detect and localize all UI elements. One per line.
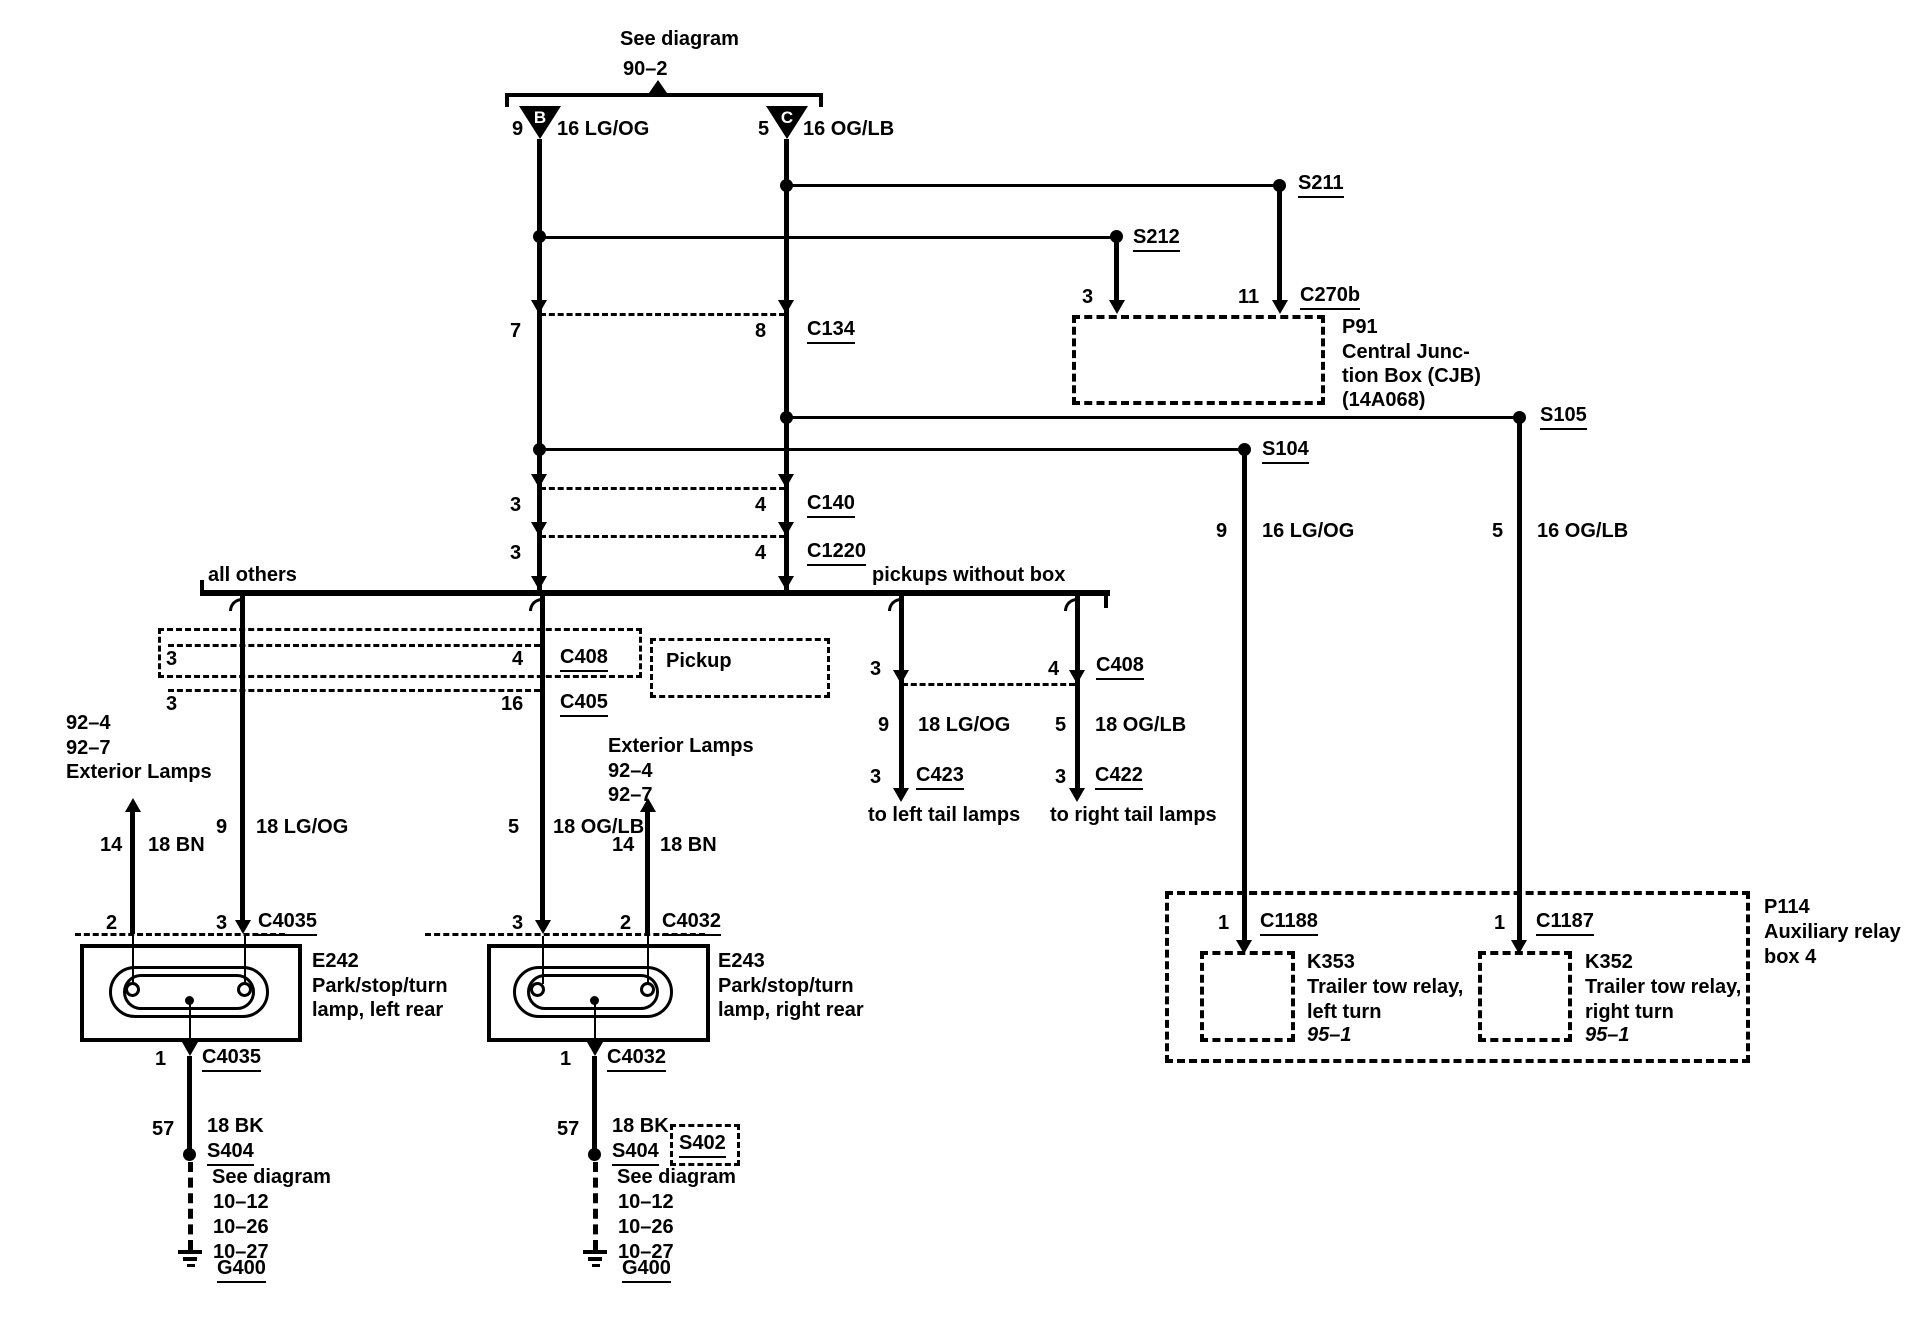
p114-id: P114 <box>1764 896 1810 919</box>
arrowhead-icon <box>531 474 547 488</box>
e242-bn-gauge: 18 BN <box>148 834 205 857</box>
junction-dot <box>588 1148 601 1161</box>
ground-symbol-icon <box>183 1257 197 1261</box>
see-diagram-ref: 90–2 <box>623 58 668 81</box>
k352-name-1: Trailer tow relay, <box>1585 976 1741 999</box>
arrowhead-icon <box>235 920 251 934</box>
wire-hook-icon <box>529 598 542 611</box>
top-bracket-end-left <box>505 93 509 107</box>
feed-left-pin: 9 <box>1216 520 1227 543</box>
connector-triangle-b-label: B <box>519 108 561 128</box>
e242-see-note-3: 10–26 <box>213 1216 269 1239</box>
e242-see-note-1: See diagram <box>212 1166 331 1189</box>
arrowhead-icon <box>778 300 794 314</box>
connector-c423-label: C423 <box>916 764 964 790</box>
wire-c-gauge: 16 OG/LB <box>803 118 894 141</box>
top-bracket <box>505 93 823 97</box>
bus-hook-right <box>1104 594 1108 608</box>
top-bracket-end-right <box>819 93 823 107</box>
arrowhead-icon <box>531 576 547 590</box>
k353-ref: 95–1 <box>1307 1024 1352 1047</box>
feed-left-gauge: 16 LG/OG <box>1262 520 1354 543</box>
p114-name-2: box 4 <box>1764 946 1816 969</box>
wiring-diagram: See diagram 90–2 B C 9 16 LG/OG 5 16 OG/… <box>0 0 1912 1328</box>
wire-e243-ground-dashed <box>593 1162 598 1250</box>
c4035-bottom-pin: 1 <box>155 1048 166 1071</box>
connector-c405-line <box>168 689 540 692</box>
junction-dot <box>533 230 546 243</box>
splice-s402-label: S402 <box>679 1132 726 1158</box>
c422-pin: 3 <box>1055 766 1066 789</box>
c408-left-pin-right: 4 <box>512 648 523 671</box>
e242-filament-left <box>125 982 140 997</box>
junction-dot <box>780 179 793 192</box>
junction-dot <box>533 443 546 456</box>
wire-s211-drop <box>1277 187 1282 303</box>
wire-c-pin: 5 <box>758 118 769 141</box>
ground-g400-right-label: G400 <box>622 1257 671 1283</box>
connector-c134-label: C134 <box>807 318 855 344</box>
connector-c4035-bottom-label: C4035 <box>202 1046 261 1072</box>
c4032-bottom-pin: 1 <box>560 1048 571 1071</box>
wire-s212-drop <box>1114 239 1119 303</box>
cjb-name-3: (14A068) <box>1342 389 1425 412</box>
c423-pin: 3 <box>870 766 881 789</box>
splice-line-s211 <box>787 184 1280 187</box>
connector-c4035-top-label: C4035 <box>258 910 317 936</box>
connector-c408-left-label: C408 <box>560 646 608 672</box>
pickup-left-gauge: 18 LG/OG <box>918 714 1010 737</box>
ground-symbol-icon <box>588 1257 602 1261</box>
c140-pin-left: 3 <box>510 494 521 517</box>
k352-ref: 95–1 <box>1585 1024 1630 1047</box>
pickup-note: Pickup <box>666 650 732 673</box>
connector-c408-right-label: C408 <box>1096 654 1144 680</box>
wire-e242-ground-dashed <box>188 1162 193 1250</box>
right-ref-2: 92–4 <box>608 760 653 783</box>
c405-pin-right: 16 <box>501 693 523 716</box>
connector-c1220-line <box>540 535 785 538</box>
e243-name-1: Park/stop/turn <box>718 975 854 998</box>
k352-id: K352 <box>1585 951 1633 974</box>
connector-c140-line <box>540 487 785 490</box>
arrowhead-icon <box>587 1042 603 1056</box>
connector-c140-label: C140 <box>807 492 855 518</box>
bus-left-label: all others <box>208 564 297 587</box>
splice-s211-label: S211 <box>1298 172 1344 198</box>
pickup-c408-pin-right: 4 <box>1048 658 1059 681</box>
bracket-caret-icon <box>649 80 667 93</box>
e242-name-1: Park/stop/turn <box>312 975 448 998</box>
left-ref-2: 92–7 <box>66 737 111 760</box>
e242-see-note-2: 10–12 <box>213 1191 269 1214</box>
p114-name-1: Auxiliary relay <box>1764 921 1901 944</box>
e243-lead-left <box>542 936 544 984</box>
c1187-pin: 1 <box>1494 912 1505 935</box>
arrowhead-icon <box>1069 670 1085 684</box>
arrowhead-icon <box>1272 300 1288 314</box>
c405-pin-left: 3 <box>166 693 177 716</box>
splice-line-s105 <box>787 416 1520 419</box>
e242-filament-right <box>237 982 252 997</box>
wire-e242-ground <box>187 1056 192 1156</box>
wire-e242-bn <box>130 810 135 934</box>
connector-c408-right-line <box>902 683 1075 686</box>
junction-dot <box>183 1148 196 1161</box>
arrowhead-icon <box>531 300 547 314</box>
cjb-box <box>1072 315 1325 405</box>
arrowhead-icon <box>778 522 794 536</box>
wire-b-pin: 9 <box>512 118 523 141</box>
e243-see-note-3: 10–26 <box>618 1216 674 1239</box>
arrowhead-icon <box>1069 788 1085 802</box>
arrowhead-icon <box>778 474 794 488</box>
splice-line-s212 <box>540 236 1117 239</box>
k353-name-1: Trailer tow relay, <box>1307 976 1463 999</box>
pickup-right-gauge: 18 OG/LB <box>1095 714 1186 737</box>
connector-c1220-label: C1220 <box>807 540 866 566</box>
bus-hook-left <box>200 580 204 592</box>
feed-right-pin: 5 <box>1492 520 1503 543</box>
e242-gnd-gauge: 18 BK <box>207 1115 264 1138</box>
junction-dot <box>780 411 793 424</box>
connector-c4032-bottom-label: C4032 <box>607 1046 666 1072</box>
cjb-pin-left: 3 <box>1082 286 1093 309</box>
e243-see-note-2: 10–12 <box>618 1191 674 1214</box>
c1188-pin: 1 <box>1218 912 1229 935</box>
arrowhead-icon <box>535 920 551 934</box>
e243-feed-pin: 5 <box>508 816 519 839</box>
arrowhead-icon <box>893 788 909 802</box>
e242-center-lead <box>189 1002 191 1042</box>
e243-lead-right <box>647 936 649 984</box>
k353-relay-box <box>1200 951 1295 1042</box>
e243-gnd-gauge: 18 BK <box>612 1115 669 1138</box>
splice-s404-right-label: S404 <box>612 1140 659 1166</box>
e243-filament-right <box>640 982 655 997</box>
connector-c408-left-line <box>168 644 540 647</box>
arrowhead-icon <box>893 670 909 684</box>
e243-bn-pin: 14 <box>612 834 634 857</box>
c1220-pin-right: 4 <box>755 542 766 565</box>
wire-s104-to-k353 <box>1242 451 1247 943</box>
pickup-left-pin: 9 <box>878 714 889 737</box>
splice-s212-label: S212 <box>1133 226 1180 252</box>
ground-g400-left-label: G400 <box>217 1257 266 1283</box>
c4035-pin-3: 3 <box>216 912 227 935</box>
wire-hook-icon <box>888 598 901 611</box>
connector-c4032-top-label: C4032 <box>662 910 721 936</box>
connector-c405-label: C405 <box>560 691 608 717</box>
wire-e243-bn <box>645 810 650 934</box>
pickup-c408-pin-left: 3 <box>870 658 881 681</box>
bus-right-label: pickups without box <box>872 564 1065 587</box>
right-tail-lamps-note: to right tail lamps <box>1050 804 1217 827</box>
see-diagram-note: See diagram <box>620 28 739 51</box>
pickup-right-pin: 5 <box>1055 714 1066 737</box>
splice-s105-label: S105 <box>1540 404 1587 430</box>
left-ref-3: Exterior Lamps <box>66 761 212 784</box>
k352-relay-box <box>1478 951 1572 1042</box>
e242-gnd-pin: 57 <box>152 1118 174 1141</box>
k352-name-2: right turn <box>1585 1001 1674 1024</box>
c408-left-pin-left: 3 <box>166 648 177 671</box>
bus-line <box>200 590 1110 596</box>
e242-bn-pin: 14 <box>100 834 122 857</box>
cjb-pin-right: 11 <box>1238 286 1259 309</box>
wire-hook-icon <box>1064 598 1077 611</box>
connector-c1187-label: C1187 <box>1536 910 1594 936</box>
arrowhead-icon <box>531 522 547 536</box>
arrowhead-icon <box>1109 300 1125 314</box>
e242-name-2: lamp, left rear <box>312 999 443 1022</box>
left-tail-lamps-note: to left tail lamps <box>868 804 1020 827</box>
right-ref-1: Exterior Lamps <box>608 735 754 758</box>
wire-b-gauge: 16 LG/OG <box>557 118 649 141</box>
c4032-pin-2: 2 <box>620 912 631 935</box>
connector-triangle-c-label: C <box>766 108 808 128</box>
connector-c1188-label: C1188 <box>1260 910 1318 936</box>
k353-id: K353 <box>1307 951 1355 974</box>
splice-s104-label: S104 <box>1262 438 1309 464</box>
k353-name-2: left turn <box>1307 1001 1381 1024</box>
e242-lead-left <box>132 936 134 984</box>
c134-pin-left: 7 <box>510 320 521 343</box>
c134-pin-right: 8 <box>755 320 766 343</box>
arrowhead-icon <box>778 576 794 590</box>
ground-symbol-icon <box>187 1264 195 1267</box>
connector-c422-label: C422 <box>1095 764 1143 790</box>
ground-symbol-icon <box>583 1250 607 1254</box>
cjb-name-2: tion Box (CJB) <box>1342 365 1481 388</box>
e243-see-note-1: See diagram <box>617 1166 736 1189</box>
e243-center-lead <box>594 1002 596 1042</box>
cjb-name-1: Central Junc- <box>1342 341 1470 364</box>
e243-name-2: lamp, right rear <box>718 999 864 1022</box>
cjb-id: P91 <box>1342 316 1378 339</box>
c1220-pin-left: 3 <box>510 542 521 565</box>
wire-hook-icon <box>229 598 242 611</box>
c4035-pin-2: 2 <box>106 912 117 935</box>
connector-c270b-label: C270b <box>1300 284 1360 310</box>
splice-line-s104 <box>540 448 1245 451</box>
feed-right-gauge: 16 OG/LB <box>1537 520 1628 543</box>
wire-s105-to-k352 <box>1517 419 1522 943</box>
e242-feed-pin: 9 <box>216 816 227 839</box>
e242-id: E242 <box>312 950 359 973</box>
arrowhead-icon <box>182 1042 198 1056</box>
connector-c134-line <box>540 313 785 316</box>
splice-s404-left-label: S404 <box>207 1140 254 1166</box>
e243-id: E243 <box>718 950 765 973</box>
ground-symbol-icon <box>178 1250 202 1254</box>
wire-e243-ground <box>592 1056 597 1156</box>
e243-bn-gauge: 18 BN <box>660 834 717 857</box>
e242-lead-right <box>244 936 246 984</box>
c4032-pin-3: 3 <box>512 912 523 935</box>
e243-filament-left <box>530 982 545 997</box>
wire-drop-pickup-left <box>899 596 904 796</box>
e243-gnd-pin: 57 <box>557 1118 579 1141</box>
left-ref-1: 92–4 <box>66 712 111 735</box>
c140-pin-right: 4 <box>755 494 766 517</box>
e242-feed-gauge: 18 LG/OG <box>256 816 348 839</box>
ground-symbol-icon <box>592 1264 600 1267</box>
wire-drop-pickup-right <box>1075 596 1080 796</box>
